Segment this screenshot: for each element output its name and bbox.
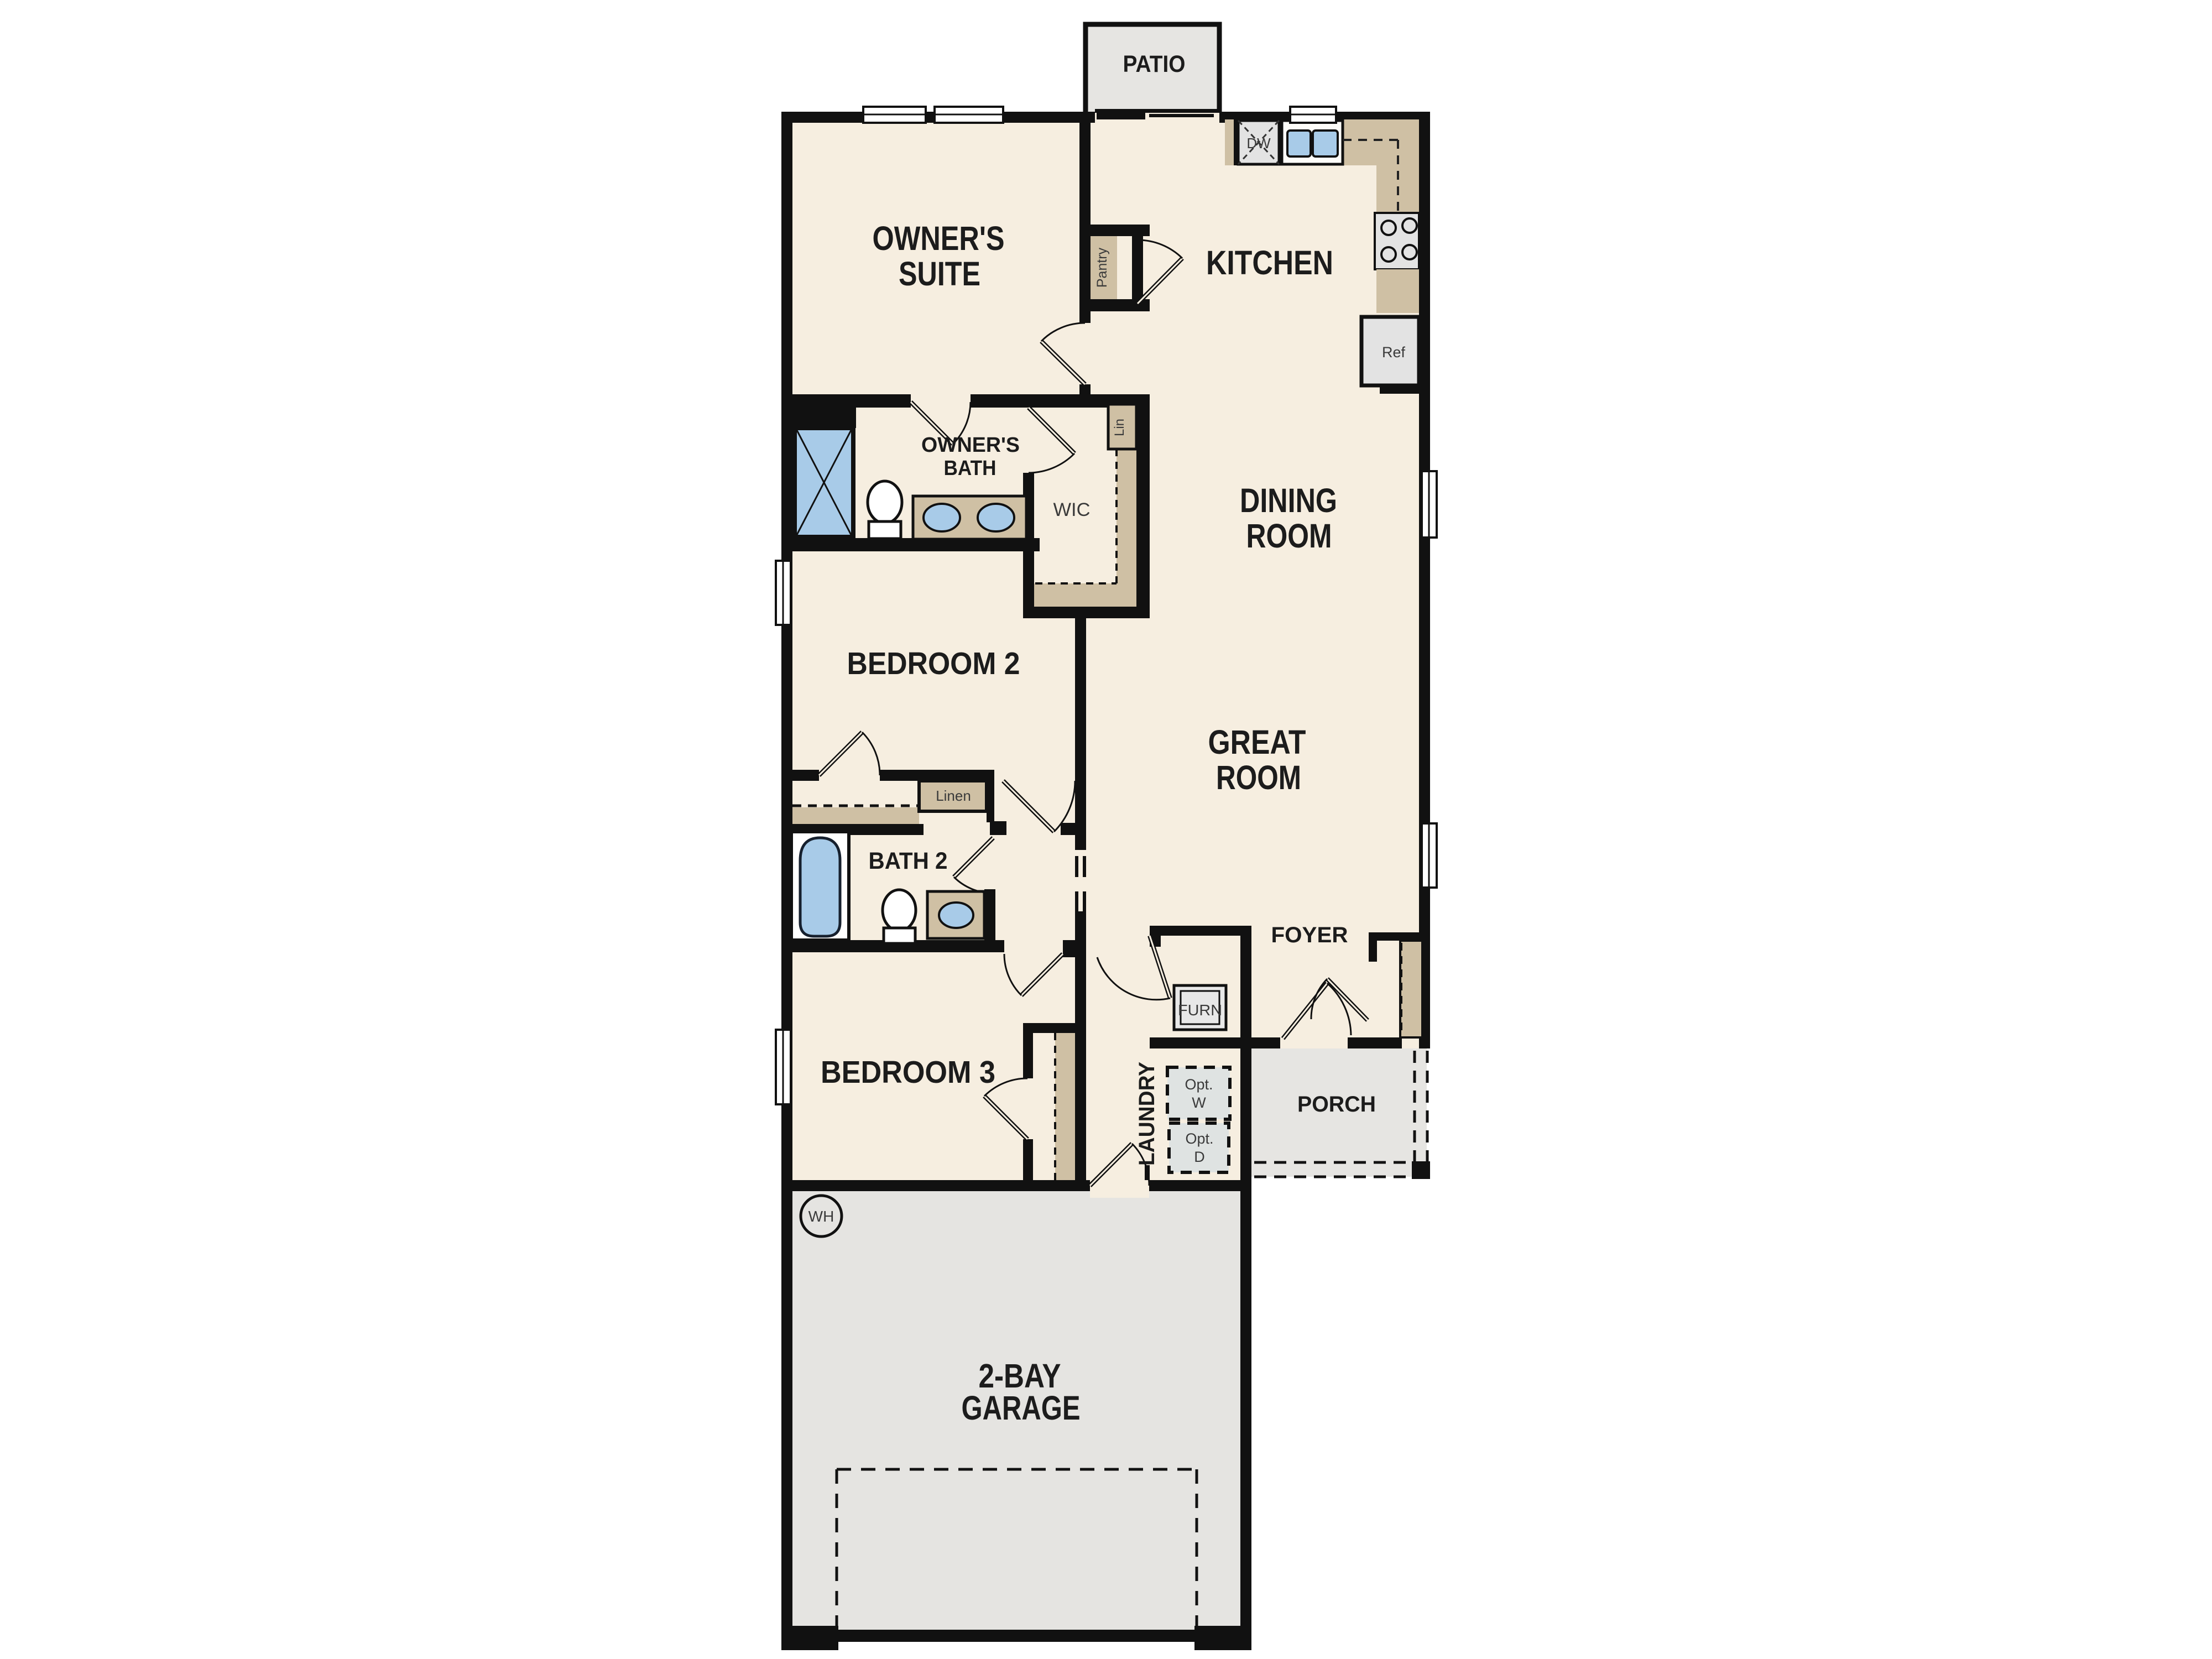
svg-text:OWNER'S: OWNER'S	[921, 434, 1020, 457]
svg-text:BATH: BATH	[944, 457, 997, 480]
svg-text:GREAT: GREAT	[1208, 723, 1306, 761]
svg-text:Ref: Ref	[1382, 344, 1406, 361]
svg-text:OWNER'S: OWNER'S	[873, 220, 1005, 257]
svg-text:PORCH: PORCH	[1297, 1092, 1376, 1117]
svg-text:DW: DW	[1246, 135, 1271, 152]
svg-text:FOYER: FOYER	[1271, 923, 1348, 947]
svg-text:SUITE: SUITE	[899, 255, 980, 293]
svg-text:Opt.: Opt.	[1185, 1130, 1213, 1147]
svg-text:WH: WH	[808, 1208, 834, 1225]
svg-text:Linen: Linen	[936, 787, 971, 804]
svg-text:ROOM: ROOM	[1246, 517, 1332, 555]
svg-text:KITCHEN: KITCHEN	[1206, 244, 1333, 281]
svg-text:Pantry: Pantry	[1094, 247, 1110, 288]
svg-text:BATH 2: BATH 2	[869, 848, 948, 874]
svg-text:BEDROOM 2: BEDROOM 2	[847, 646, 1020, 681]
svg-text:Opt.: Opt.	[1185, 1076, 1213, 1093]
svg-text:LAUNDRY: LAUNDRY	[1135, 1062, 1159, 1166]
svg-text:GARAGE: GARAGE	[962, 1389, 1081, 1427]
svg-text:WIC: WIC	[1053, 499, 1091, 520]
svg-text:W: W	[1192, 1094, 1206, 1111]
svg-text:D: D	[1194, 1149, 1205, 1165]
svg-text:PATIO: PATIO	[1123, 51, 1186, 77]
svg-text:FURN: FURN	[1178, 1001, 1222, 1019]
svg-text:Lin: Lin	[1112, 419, 1127, 436]
svg-text:ROOM: ROOM	[1216, 759, 1301, 796]
svg-text:BEDROOM 3: BEDROOM 3	[821, 1055, 995, 1090]
svg-text:DINING: DINING	[1240, 482, 1337, 519]
